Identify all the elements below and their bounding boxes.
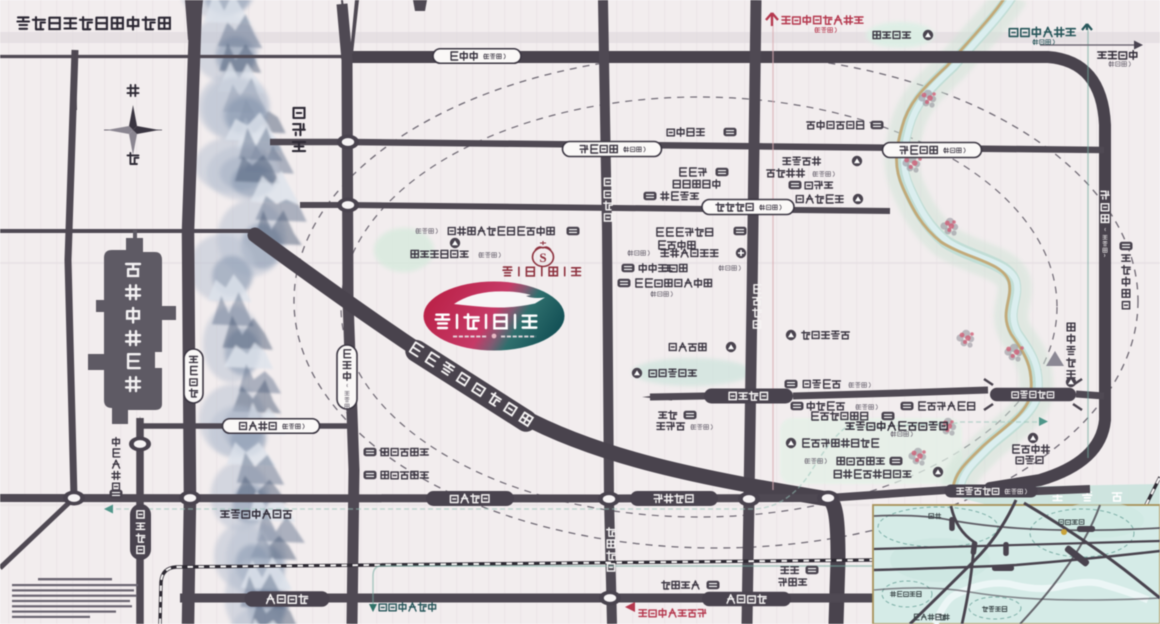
svg-text:S: S — [539, 250, 546, 265]
